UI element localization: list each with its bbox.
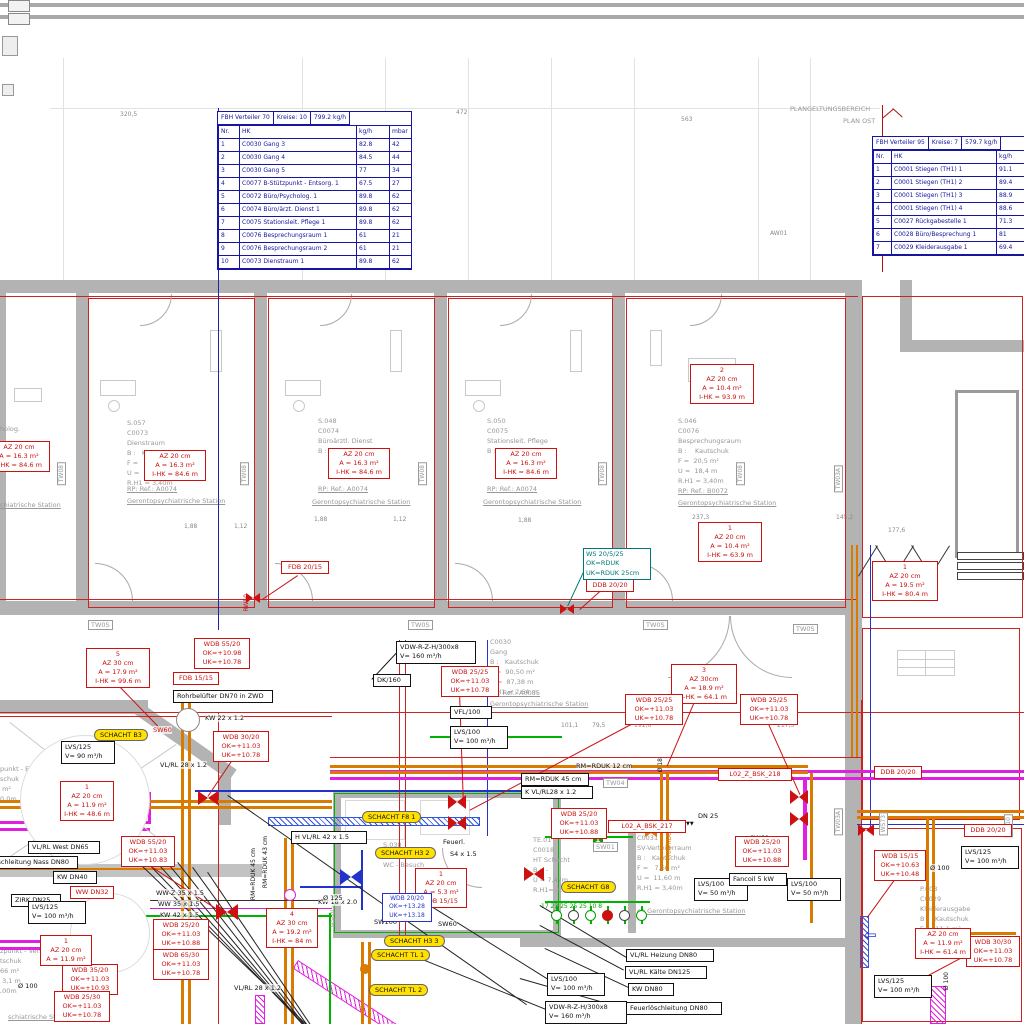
table-row: 1C0001 Stiegen (TH1) 191.1 — [874, 164, 1024, 177]
service-label: LVS/125 V= 100 m³/h — [961, 846, 1019, 869]
table-cell: 2 — [874, 177, 892, 190]
riser-icon — [602, 910, 613, 921]
valve-triangle — [340, 869, 351, 885]
table-cell: C0028 Büro/Besprechung 1 — [892, 229, 997, 242]
table-cell: 9 — [219, 243, 240, 256]
wall-tag: TW0S — [643, 620, 668, 630]
valve-triangle — [858, 824, 866, 836]
pipe-label: SW60 — [438, 920, 457, 928]
table-title-cell: Kreise: 7 — [929, 137, 962, 150]
shaft-label-h3-3: SCHACHT H3 3 — [384, 935, 445, 947]
wall-tag: SW01 — [593, 842, 618, 852]
valve-triangle — [560, 604, 567, 614]
table-row: 4C0001 Stiegen (TH1) 488.6 — [874, 203, 1024, 216]
column-header: HK — [892, 151, 997, 164]
service-label: Fancoil 5 kW — [729, 873, 787, 886]
vertical-tag: RM=RDUK 45 cm — [250, 848, 257, 900]
plan-region-label: PLAN OST — [843, 116, 875, 126]
dimension-label: 1,88 — [314, 516, 327, 523]
table-cell: 6 — [874, 229, 892, 242]
table-title-row: FBH Verteiler 95Kreise: 7579.7 kg/h — [873, 137, 1024, 150]
plan-line — [0, 716, 332, 717]
wall-top — [0, 280, 858, 293]
plan-line — [926, 818, 929, 930]
table-row: 7C0029 Kleiderausgabe 169.4 — [874, 242, 1024, 255]
plan-wall — [2, 84, 14, 96]
shaft-label-g8: SCHACHT G8 — [561, 881, 616, 893]
table-cell: C0001 Stiegen (TH1) 2 — [892, 177, 997, 190]
heating-annotation: WDB 30/20 OK=+11.03 UK=+10.78 — [213, 731, 269, 762]
table-cell: 62 — [390, 204, 413, 217]
shaft-label-f8-1: SCHACHT F8 1 — [362, 811, 421, 823]
table-cell: C0076 Besprechungsraum 2 — [240, 243, 357, 256]
plan-wall — [570, 330, 582, 372]
table-title-cell: 579.7 kg/h — [962, 137, 1001, 150]
shaft-label-h3-2: SCHACHT H3 2 — [375, 847, 436, 859]
plan-wall — [390, 330, 402, 372]
heating-annotation: WW DN32 — [70, 886, 114, 899]
valve-triangle — [216, 904, 227, 920]
service-label: VL/RL Heizung DN80 — [626, 949, 714, 962]
column-header: Nr. — [874, 151, 892, 164]
table-cell: C0074 Büro/ärzt. Dienst 1 — [240, 204, 357, 217]
table-cell: 84.5 — [357, 152, 390, 165]
column-header: HK — [240, 126, 357, 139]
wall-tag: TW04 — [603, 778, 628, 788]
table-row: 8C0076 Besprechungsraum 16121 — [219, 230, 413, 243]
table-cell: 3 — [219, 165, 240, 178]
heating-annotation: DDB 20/20 — [964, 824, 1012, 837]
heating-annotation: 1 AZ 20 cm A = 11.9 m² I-HK = 48.6 m — [60, 781, 114, 821]
plan-line — [861, 700, 862, 1024]
table-cell: 89.8 — [357, 256, 390, 269]
heating-annotation: DDB 20/20 — [874, 766, 922, 779]
room-label: Gerontopsychiatrische Station — [127, 496, 225, 506]
vertical-tag: TW08 — [240, 462, 249, 485]
plan-line — [810, 58, 811, 280]
vertical-tag: WS73 — [879, 812, 888, 835]
riser-icon — [568, 910, 579, 921]
plan-line — [932, 818, 935, 930]
plan-line — [300, 886, 362, 888]
plan-line — [0, 296, 858, 297]
table-cell: C0073 Dienstraum 1 — [240, 256, 357, 269]
service-label: KW DN40 — [53, 871, 97, 884]
dimension-label: 563 — [681, 116, 692, 123]
service-label: LVS/125 V= 90 m³/h — [61, 741, 115, 764]
pipe-label: KW 42 x 1.5 — [160, 911, 199, 919]
room-label-sv-verteilerraum: C0031 SV-Verteilerraum B : Kautschuk F =… — [637, 833, 692, 893]
plan-wall — [254, 280, 267, 615]
top-band — [0, 3, 1024, 7]
plan-line — [545, 901, 650, 903]
pipe-label: S4 x 1.5 — [450, 850, 477, 858]
table-cell: 71.3 — [997, 216, 1024, 229]
plan-line — [758, 58, 759, 280]
valve-triangle — [567, 604, 574, 614]
table-cell: C0001 Stiegen (TH1) 3 — [892, 190, 997, 203]
vertical-tag: TW08 — [57, 462, 66, 485]
valve-icon — [524, 866, 544, 881]
heating-annotation: WDB 55/20 OK=+10.98 UK=+10.78 — [194, 638, 250, 669]
pipe-label: ▼▼ — [686, 821, 694, 827]
door-arc — [730, 616, 792, 678]
plan-wall — [8, 0, 30, 12]
plan-line — [856, 545, 858, 757]
vertical-tag: TW03A — [834, 808, 843, 835]
room-label: RP: Ref.: B0072 — [678, 486, 728, 496]
dimension-label: AW01 — [770, 230, 787, 237]
valve-triangle — [457, 816, 466, 830]
table-row: 9C0076 Besprechungsraum 26121 — [219, 243, 413, 256]
table-cell: 8 — [219, 230, 240, 243]
room-label-besprechungsraum: S.046 C0076 Besprechungsraum B : Kautsch… — [678, 416, 741, 486]
valve-triangle — [253, 593, 260, 603]
valve-icon — [560, 603, 575, 614]
table-cell: 88.9 — [997, 190, 1024, 203]
riser-icon — [551, 910, 562, 921]
column-header: kg/h — [357, 126, 390, 139]
room-label: Gerontopsychiatrische Station — [312, 497, 410, 507]
valve-icon — [448, 795, 466, 809]
dimension-label: 1,88 — [184, 523, 197, 530]
table-cell: 89.8 — [357, 204, 390, 217]
heating-annotation: WDB 25/20 OK=+11.03 UK=+10.88 — [551, 808, 607, 839]
pipe-label: DN 25 — [698, 812, 718, 820]
service-label: H VL/RL 42 x 1.5 — [291, 831, 367, 844]
fbh-verteiler-95-table: FBH Verteiler 95Kreise: 7579.7 kg/hNr.HK… — [872, 136, 1024, 256]
pipe-label: KW 22 x 1.2 — [205, 714, 244, 722]
service-label: VDW-R-Z-H/300x8 V= 160 m³/h — [396, 641, 476, 664]
valve-triangle — [208, 791, 218, 805]
riser-icon — [284, 889, 296, 901]
heating-annotation: AZ 20 cm A = 11.9 m² I-HK = 61.4 m — [915, 928, 971, 959]
plan-line — [468, 58, 469, 280]
hatched-duct — [255, 995, 265, 1024]
vertical-tag: TW08 — [418, 462, 427, 485]
service-label: LVS/100 V= 100 m³/h — [547, 973, 605, 996]
riser-icon — [636, 910, 647, 921]
service-label: Rohrbelüfter DN70 in ZWD — [173, 690, 273, 703]
plan-region-label: PLANGELTUNGSBEREICH — [790, 104, 870, 114]
duct-annotation: WS 20/5/25 OK=RDUK UK=RDUK 25cm — [583, 548, 651, 580]
column-header: mbar — [390, 126, 413, 139]
heating-annotation: WDB 25/20 OK=+11.03 UK=+10.88 — [153, 919, 209, 950]
table-cell: 61 — [357, 230, 390, 243]
table-cell: 6 — [219, 204, 240, 217]
heating-annotation: FDB 20/15 — [281, 561, 329, 574]
table-cell: 34 — [390, 165, 413, 178]
pipe-label: Ø 100 — [930, 864, 950, 872]
plan-line — [925, 650, 926, 676]
plan-line — [897, 659, 955, 660]
table-row: 10C0073 Dienstraum 189.862 — [219, 256, 413, 269]
table-row: 6C0028 Büro/Besprechung 181 — [874, 229, 1024, 242]
valve-triangle — [457, 795, 466, 809]
fire-damper-label: L02_A_BSK_217 — [608, 820, 686, 833]
table-row: 5C0027 Rückgabestelle 171.3 — [874, 216, 1024, 229]
table-cell: 1 — [874, 164, 892, 177]
service-label: Löschleitung Nass DN80 — [0, 856, 78, 869]
top-band — [0, 15, 1024, 19]
table-cell: 89.4 — [997, 177, 1024, 190]
vertical-tag: TW08 — [598, 462, 607, 485]
vertical-tag: Ø 18 — [657, 758, 664, 772]
table-cell: C0030 Gang 4 — [240, 152, 357, 165]
table-cell: C0001 Stiegen (TH1) 4 — [892, 203, 997, 216]
table-cell: 67.5 — [357, 178, 390, 191]
pipe-label: Ø 125 — [323, 894, 343, 902]
heating-annotation: WDB 55/20 OK=+11.03 UK=+10.83 — [121, 836, 175, 867]
heating-annotation: 2 AZ 20 cm A = 10.4 m² I-HK = 93.9 m — [690, 364, 754, 404]
plan-wall — [465, 380, 501, 396]
plan-line — [63, 58, 64, 280]
valve-icon — [340, 868, 362, 885]
heating-annotation: AZ 20 cm A = 16.3 m² I-HK = 84.6 m — [144, 450, 206, 481]
valve-triangle — [524, 867, 534, 881]
plan-wall — [14, 388, 42, 402]
vertical-tag: RM=RDUK 43 cm — [262, 836, 269, 888]
dimension-label: 1,88 — [518, 517, 531, 524]
table-cell: 7 — [874, 242, 892, 255]
table-cell: C0030 Gang 3 — [240, 139, 357, 152]
service-label: VDW-R-Z-H/300x8 V= 160 m³/h — [545, 1001, 627, 1024]
table-row: 2C0001 Stiegen (TH1) 289.4 — [874, 177, 1024, 190]
table-cell: 27 — [390, 178, 413, 191]
service-label: K VL/RL28 x 1.2 — [521, 786, 593, 799]
room-label: Gerontopsychiatrische Station — [490, 699, 588, 709]
riser-icon — [360, 964, 370, 974]
riser-icon — [176, 708, 200, 732]
riser-icon — [619, 910, 630, 921]
heating-annotation: 5 AZ 30 cm A = 17.9 m² I-HK = 99.6 m — [86, 648, 150, 688]
flow-arrow-icon: ⇦ — [864, 928, 877, 943]
riser-icon — [293, 400, 305, 412]
heating-annotation: WDB 15/15 OK=+10.63 UK=+10.48 — [874, 850, 926, 881]
vertical-tag: RW50 — [243, 594, 250, 612]
room-label: RP: Ref.: A0074 — [127, 484, 177, 494]
table-cell: 44 — [390, 152, 413, 165]
column-header: Nr. — [219, 126, 240, 139]
table-row: 1C0030 Gang 382.842 — [219, 139, 413, 152]
table-cell: 21 — [390, 230, 413, 243]
valve-triangle — [790, 790, 799, 804]
table-cell: 61 — [357, 243, 390, 256]
plan-wall — [434, 280, 447, 615]
table-cell: 81 — [997, 229, 1024, 242]
room-label: Gerontopsychiatrische Station — [483, 497, 581, 507]
pipe-label: Ø 100 — [18, 982, 38, 990]
pipe-label: Feuerl. — [443, 838, 465, 846]
heating-annotation: 4 AZ 30 cm A = 19.2 m² I-HK = 84 m — [266, 908, 318, 948]
service-label: VL/RL Kälte DN125 — [625, 966, 707, 979]
vertical-tag: TW08 — [736, 462, 745, 485]
table-cell: 62 — [390, 217, 413, 230]
service-label: LVS/125 V= 100 m³/h — [874, 975, 932, 998]
table-cell: 1 — [219, 139, 240, 152]
table-title-cell: FBH Verteiler 95 — [873, 137, 929, 150]
valve-triangle — [448, 795, 457, 809]
heating-annotation: 1 AZ 20 cm A = 19.5 m² I-HK = 80.4 m — [872, 561, 938, 601]
table-cell: C0075 Stationsleit. Pflege 1 — [240, 217, 357, 230]
table-cell: 62 — [390, 256, 413, 269]
heating-annotation: AZ 20 cm A = 16.3 m² I-HK = 84.6 m — [495, 448, 557, 479]
table-cell: C0072 Büro/Psycholog. 1 — [240, 191, 357, 204]
shaft-label-tl-2: SCHACHT TL 2 — [369, 984, 428, 996]
service-label: DK/160 — [373, 674, 411, 687]
service-label: VFL/100 — [450, 706, 492, 719]
service-label: KW DN80 — [628, 983, 674, 996]
pipe-label: WW 35 x 1.5 — [158, 900, 200, 908]
riser-icon — [585, 910, 596, 921]
plan-line — [551, 58, 552, 280]
table-row: 3C0030 Gang 57734 — [219, 165, 413, 178]
heating-annotation: 1 AZ 20 cm A = 10.4 m² I-HK = 63.9 m — [698, 522, 762, 562]
wall-tag: TW0S — [88, 620, 113, 630]
table-cell: 21 — [390, 243, 413, 256]
dimension-label: 145,2 — [836, 514, 853, 521]
table-title-cell: 799.2 kg/h — [311, 112, 350, 125]
heating-annotation: WDB 25/20 OK=+11.03 UK=+10.88 — [735, 836, 789, 867]
table-cell: C0029 Kleiderausgabe 1 — [892, 242, 997, 255]
table-row: 4C0077 B-Stützpunkt - Entsorg. 167.527 — [219, 178, 413, 191]
table-cell: 4 — [874, 203, 892, 216]
table-cell: 5 — [874, 216, 892, 229]
table-cell: 2 — [219, 152, 240, 165]
plan-wall — [210, 330, 222, 372]
valve-triangle — [448, 816, 457, 830]
heating-annotation: WDB 25/25 OK=+11.03 UK=+10.78 — [625, 694, 683, 725]
valve-icon — [198, 790, 218, 805]
plan-line — [361, 942, 364, 1024]
dimension-label: 237,3 — [692, 514, 709, 521]
pipe-label: VL/RL 28 x 1.2 — [160, 761, 207, 769]
table-row: 6C0074 Büro/ärzt. Dienst 189.862 — [219, 204, 413, 217]
dimension-label: 79,5 — [592, 722, 605, 729]
pipe-label: RM=RDUK 12 cm — [576, 762, 632, 770]
riser-icon — [108, 400, 120, 412]
valve-icon — [448, 816, 466, 830]
plan-line — [870, 545, 871, 827]
table-cell: 4 — [219, 178, 240, 191]
dimension-label: 17 23 25 25 25 10 8 — [541, 903, 602, 910]
table-cell: 42 — [390, 139, 413, 152]
fire-damper-label: L02_Z_BSK_218 — [718, 768, 792, 781]
wall-tag: TW0S — [793, 624, 818, 634]
table-cell: 69.4 — [997, 242, 1024, 255]
vertical-tag: TW03A — [834, 465, 843, 492]
table-cell: 10 — [219, 256, 240, 269]
shaft-label-tl-1: SCHACHT TL 1 — [371, 949, 430, 961]
heating-annotation: WDB 25/25 OK=+11.03 UK=+10.78 — [740, 694, 798, 725]
valve-triangle — [351, 869, 362, 885]
heating-annotation: AZ 20 cm A = 16.3 m² I-HK = 84.6 m — [0, 441, 50, 472]
room-label: holog. — [0, 424, 20, 434]
service-label: VL/RL West DN65 — [28, 841, 100, 854]
plan-wall — [100, 380, 136, 396]
plan-line — [892, 108, 902, 117]
table-title-cell: FBH Verteiler 70 — [218, 112, 274, 125]
heating-annotation: DDB 20/20 — [586, 579, 634, 592]
heating-annotation: WDB 25/30 OK=+11.03 UK=+10.78 — [54, 991, 110, 1022]
plan-wall — [2, 36, 18, 56]
valve-triangle — [198, 791, 208, 805]
table-cell: 62 — [390, 191, 413, 204]
table-row: 3C0001 Stiegen (TH1) 388.9 — [874, 190, 1024, 203]
valve-triangle — [790, 812, 799, 826]
valve-triangle — [799, 812, 808, 826]
heating-annotation: WDB 65/30 OK=+11.03 UK=+10.78 — [153, 949, 209, 980]
heating-annotation: FDB 15/15 — [173, 672, 219, 685]
dimension-label: 1,12 — [393, 516, 406, 523]
table-cell: 3 — [874, 190, 892, 203]
heating-annotation: AZ 20 cm A = 16.3 m² I-HK = 84.6 m — [328, 448, 390, 479]
dimension-label: 101,1 — [561, 722, 578, 729]
plan-canvas: PLANGELTUNGSBEREICHPLAN OST320,547256323… — [0, 0, 1024, 1024]
service-label: LVS/125 V= 100 m³/h — [28, 901, 86, 924]
table-title-row: FBH Verteiler 70Kreise: 10799.2 kg/h — [218, 112, 411, 125]
pipe-label: SW60 — [153, 726, 172, 734]
column-header: kg/h — [997, 151, 1024, 164]
table-cell: C0077 B-Stützpunkt - Entsorg. 1 — [240, 178, 357, 191]
table-cell: C0076 Besprechungsraum 1 — [240, 230, 357, 243]
valve-icon — [858, 824, 874, 836]
riser-icon — [473, 400, 485, 412]
room-label: chiatrische Station — [0, 500, 61, 510]
plan-wall — [862, 628, 1020, 820]
table-row: 2C0030 Gang 484.544 — [219, 152, 413, 165]
table-row: 7C0075 Stationsleit. Pflege 189.862 — [219, 217, 413, 230]
plan-line — [897, 667, 955, 668]
valve-icon — [216, 903, 238, 920]
table-cell: C0030 Gang 5 — [240, 165, 357, 178]
service-label: LVS/100 V= 50 m³/h — [787, 878, 841, 901]
room-label: RP: Ref.: A0074 — [487, 484, 537, 494]
service-label: RM=RDUK 45 cm — [521, 773, 589, 786]
plan-wall — [285, 380, 321, 396]
valve-icon — [790, 790, 808, 804]
plan-wall — [8, 13, 30, 25]
plan-wall — [845, 280, 862, 1024]
valve-triangle — [799, 790, 808, 804]
plan-line — [882, 109, 893, 119]
room-label: Gerontopsychiatrische Station — [678, 498, 776, 508]
table-cell: 7 — [219, 217, 240, 230]
dimension-label: 177,6 — [888, 527, 905, 534]
table-cell: 88.6 — [997, 203, 1024, 216]
plan-line — [634, 58, 635, 280]
heating-annotation: WDB 30/30 OK=+11.03 UK=+10.78 — [966, 936, 1020, 967]
dimension-label: 1,12 — [234, 523, 247, 530]
valve-icon — [790, 812, 808, 826]
plan-line — [851, 545, 853, 757]
valve-triangle — [534, 867, 544, 881]
service-label: Feuerlöschleitung DN80 — [626, 1002, 722, 1015]
table-cell: 91.1 — [997, 164, 1024, 177]
fbh-verteiler-70-table: FBH Verteiler 70Kreise: 10799.2 kg/hNr.H… — [217, 111, 412, 270]
table-row: 5C0072 Büro/Psycholog. 189.862 — [219, 191, 413, 204]
heating-annotation: WDB 25/25 OK=+11.03 UK=+10.78 — [441, 666, 499, 697]
pipe-label: WW-Z 35 x 1.5 — [156, 889, 204, 897]
heating-annotation: 1 AZ 20 cm A = 11.9 m² — [40, 935, 92, 966]
service-label: LVS/100 V= 100 m³/h — [450, 726, 508, 749]
table-cell: C0001 Stiegen (TH1) 1 — [892, 164, 997, 177]
dimension-label: 320,5 — [120, 111, 137, 118]
table-cell: 82.8 — [357, 139, 390, 152]
table-cell: 89.8 — [357, 191, 390, 204]
plan-line — [329, 913, 331, 1024]
plan-line — [0, 599, 858, 600]
